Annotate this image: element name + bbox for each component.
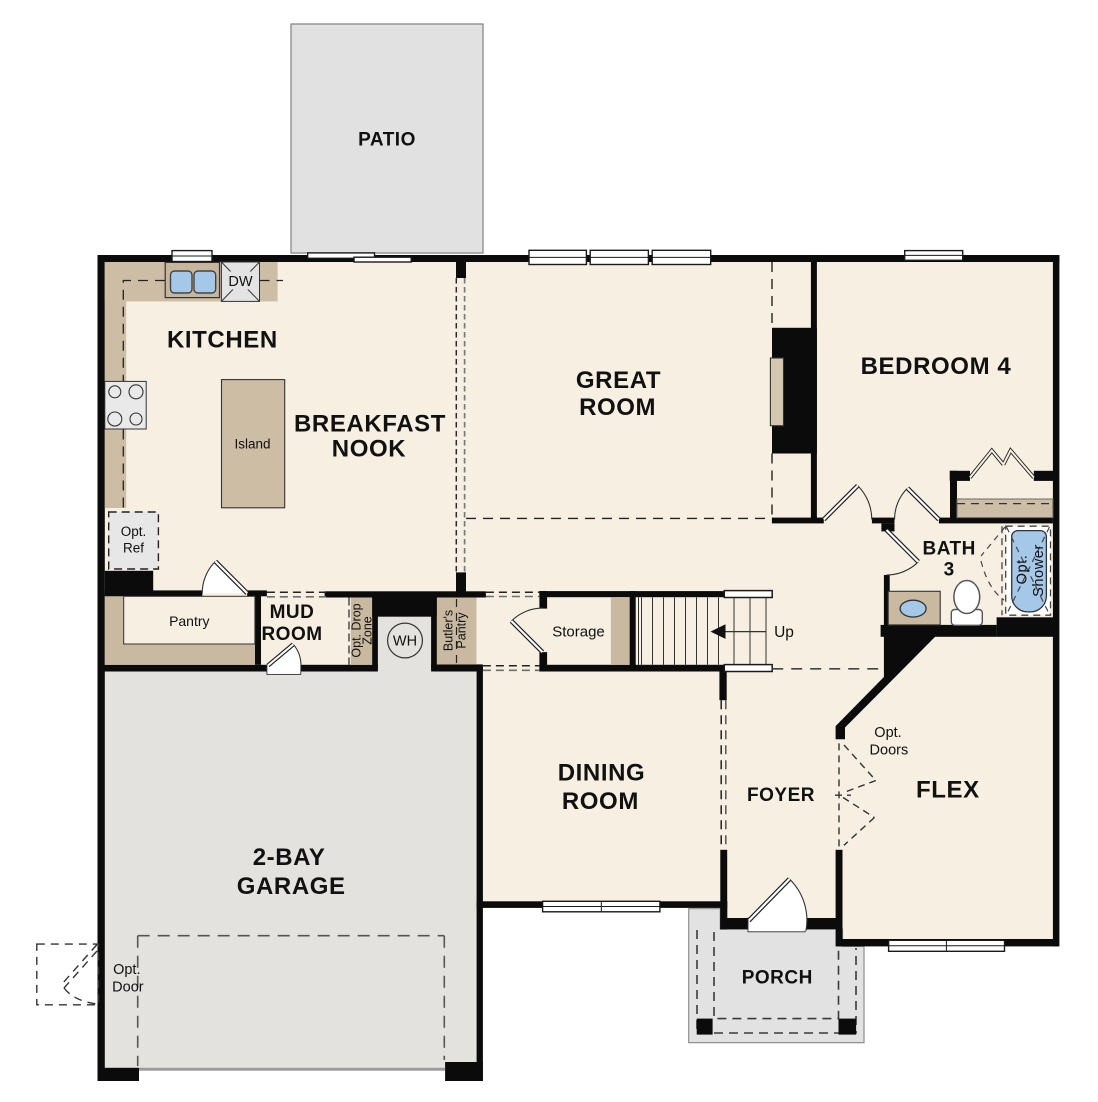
svg-text:Opt.: Opt. bbox=[1015, 555, 1031, 585]
svg-text:BEDROOM 4: BEDROOM 4 bbox=[861, 353, 1012, 380]
svg-text:Door: Door bbox=[112, 980, 144, 996]
svg-text:Opt.: Opt. bbox=[874, 725, 901, 741]
svg-text:Island: Island bbox=[234, 437, 270, 452]
svg-text:3: 3 bbox=[944, 560, 955, 581]
svg-text:Ref: Ref bbox=[123, 541, 144, 556]
svg-text:Doors: Doors bbox=[870, 742, 909, 758]
svg-text:MUD: MUD bbox=[270, 602, 315, 623]
svg-text:ROOM: ROOM bbox=[261, 624, 322, 645]
svg-text:2-BAY: 2-BAY bbox=[253, 844, 326, 871]
svg-text:GREAT: GREAT bbox=[576, 367, 661, 394]
svg-text:PORCH: PORCH bbox=[742, 968, 813, 989]
svg-text:BREAKFAST: BREAKFAST bbox=[294, 411, 446, 438]
svg-text:DW: DW bbox=[228, 274, 252, 290]
svg-text:Opt.: Opt. bbox=[121, 524, 147, 539]
svg-text:Pantry: Pantry bbox=[455, 612, 469, 649]
svg-text:ROOM: ROOM bbox=[579, 394, 656, 421]
svg-text:GARAGE: GARAGE bbox=[237, 873, 346, 900]
svg-text:Pantry: Pantry bbox=[169, 613, 209, 629]
svg-text:BATH: BATH bbox=[923, 539, 976, 560]
svg-text:Butler's: Butler's bbox=[442, 610, 456, 651]
svg-text:Opt.: Opt. bbox=[113, 962, 140, 978]
svg-text:FOYER: FOYER bbox=[747, 785, 815, 806]
svg-text:NOOK: NOOK bbox=[332, 436, 406, 463]
svg-text:Storage: Storage bbox=[552, 623, 605, 640]
svg-text:Up: Up bbox=[774, 624, 794, 641]
svg-text:Zone: Zone bbox=[361, 616, 375, 645]
svg-text:PATIO: PATIO bbox=[358, 130, 416, 151]
svg-text:Shower: Shower bbox=[1031, 544, 1047, 597]
svg-text:WH: WH bbox=[393, 634, 417, 650]
svg-text:ROOM: ROOM bbox=[562, 788, 639, 815]
svg-text:DINING: DINING bbox=[558, 759, 646, 786]
svg-text:FLEX: FLEX bbox=[916, 777, 980, 804]
svg-text:KITCHEN: KITCHEN bbox=[167, 327, 278, 354]
